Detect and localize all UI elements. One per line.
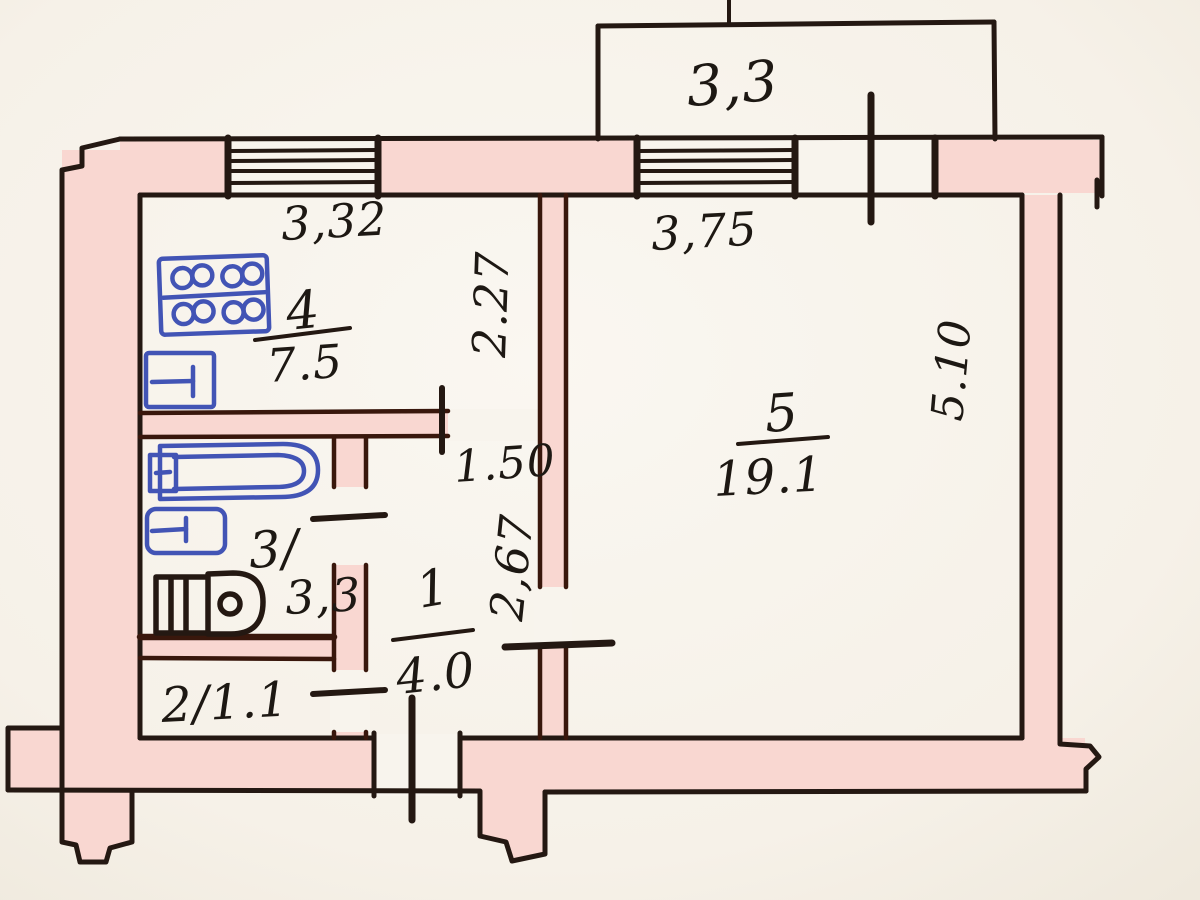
- entrance-door-gap: [374, 734, 460, 796]
- bottom-wall-bottom-edge-right: [545, 791, 1086, 792]
- living-width-label: 3,75: [650, 201, 759, 260]
- wall-kb-top-edge: [140, 411, 448, 413]
- hall-depth-label: 2,67: [479, 512, 544, 624]
- floor-plan-page: 3,3 3,32 3,75 2.27 5.10 4 7.5 5 19.1 1.5…: [0, 0, 1200, 900]
- bathroom-door-leaf: [313, 515, 385, 519]
- kitchen-window-gap: [228, 138, 378, 196]
- floor-plan-drawing: 3,3 3,32 3,75 2.27 5.10 4 7.5 5 19.1 1.5…: [0, 0, 1200, 900]
- kitchen-width-label: 3,32: [280, 191, 389, 250]
- wc-door-gap: [330, 670, 370, 732]
- living-area-label: 19.1: [712, 446, 826, 508]
- bottom-wall: [62, 738, 1085, 792]
- living-number-label: 5: [763, 383, 801, 445]
- wc-door-leaf: [313, 690, 385, 694]
- kitchen-depth-label: 2.27: [462, 250, 520, 359]
- hall-area-label: 4.0: [392, 642, 478, 706]
- top-wall-outer-edge: [120, 137, 1102, 139]
- balcony-width-label: 3,3: [684, 49, 780, 120]
- living-window-gap: [637, 138, 795, 196]
- living-door-gap: [534, 587, 572, 647]
- hall-width-label: 1.50: [452, 435, 557, 493]
- right-wall: [1022, 195, 1060, 748]
- left-wall: [62, 150, 140, 792]
- wc-label: 2/1.1: [159, 671, 291, 734]
- living-depth-label: 5.10: [922, 317, 982, 423]
- wall-kb-bottom-edge: [140, 436, 448, 437]
- balcony-right-edge: [994, 22, 995, 139]
- balcony-door-gap: [795, 138, 935, 196]
- wall-bb-bottom-edge: [140, 658, 334, 659]
- left-protrusion: [8, 728, 62, 790]
- kitchen-area-label: 7.5: [265, 334, 345, 393]
- living-door-leaf: [505, 643, 612, 647]
- bath-door-gap: [330, 487, 370, 565]
- bath-area-label: 3,3: [284, 567, 363, 625]
